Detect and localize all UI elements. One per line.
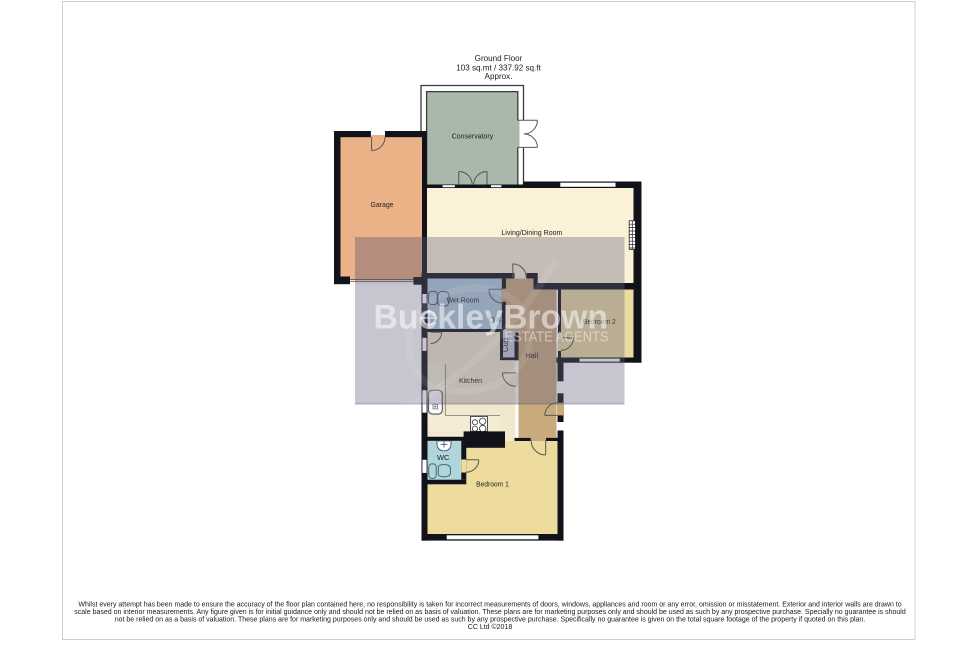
svg-text:Conservatory: Conservatory — [452, 132, 494, 141]
svg-text:103 sq.mt / 337.92 sq.ft: 103 sq.mt / 337.92 sq.ft — [456, 63, 541, 72]
svg-text:Approx.: Approx. — [485, 72, 513, 81]
svg-text:Living/Dining Room: Living/Dining Room — [501, 228, 562, 237]
svg-text:ESTATE AGENTS: ESTATE AGENTS — [505, 330, 609, 346]
svg-text:CC Ltd ©2018: CC Ltd ©2018 — [468, 623, 513, 631]
svg-text:Garage: Garage — [371, 200, 394, 209]
svg-text:scale based on interior measur: scale based on interior measurements. An… — [74, 609, 906, 616]
svg-text:Whilst every attempt has been: Whilst every attempt has been made to en… — [78, 602, 901, 609]
svg-text:Ground Floor: Ground Floor — [475, 54, 523, 63]
svg-text:not be relied on as a basis of: not be relied on as a basis of valuation… — [115, 617, 866, 624]
svg-text:Bedroom 1: Bedroom 1 — [476, 480, 509, 489]
svg-text:WC: WC — [437, 453, 450, 462]
